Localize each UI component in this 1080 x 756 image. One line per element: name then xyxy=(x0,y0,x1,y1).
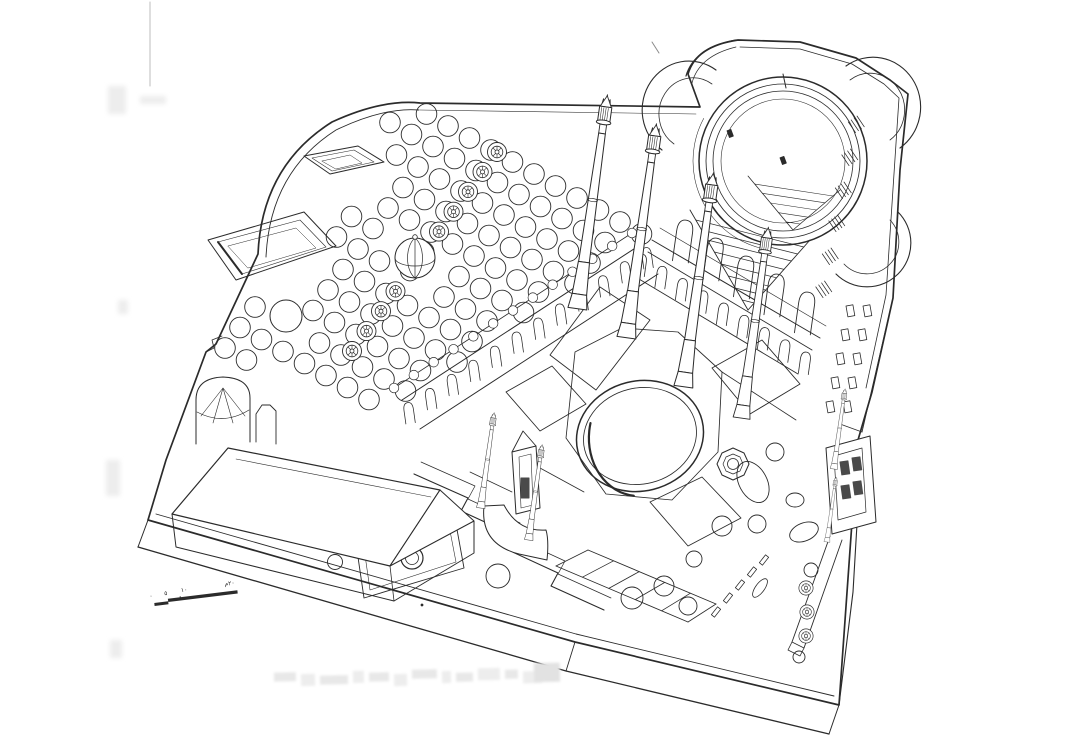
tree-circle xyxy=(309,333,330,354)
tree-circle xyxy=(429,169,450,190)
arcade-dome-bump xyxy=(548,280,558,290)
tree-circle xyxy=(558,241,579,262)
gate-window xyxy=(853,481,863,495)
ribbed-garden-dome xyxy=(395,235,435,278)
scale-bar: ٠ ٥ ١٠ ٢٠م xyxy=(149,579,238,606)
tree-circle xyxy=(273,341,294,362)
buttress-steps-part xyxy=(848,122,855,133)
paper-smudge xyxy=(106,460,120,496)
buttress-steps-part xyxy=(825,281,832,292)
caption-smudge xyxy=(301,674,315,686)
facade-arch xyxy=(794,291,816,335)
tombstone xyxy=(735,580,744,590)
caption-smudge xyxy=(320,675,348,685)
arcade-dome-bump xyxy=(627,228,637,238)
domed-kiosk xyxy=(473,162,492,181)
arcade-dome-bump xyxy=(508,306,518,316)
tree-circle xyxy=(679,597,697,615)
sunken-court xyxy=(208,212,336,280)
tall-minaret xyxy=(617,122,666,339)
tree-circle xyxy=(326,227,347,248)
tree-circle xyxy=(434,287,455,308)
tree-circle xyxy=(359,389,380,410)
arcade-arch xyxy=(737,315,750,338)
mosque-facade-arcade-part xyxy=(634,276,798,374)
stepped-semidome-line xyxy=(762,193,825,203)
arcade-dome-bump xyxy=(469,332,479,342)
tree-circle xyxy=(507,270,528,291)
tree-circle xyxy=(389,348,410,369)
east-gate-and-tomb-garden xyxy=(621,388,876,663)
domed-kiosk xyxy=(799,629,813,643)
planting-bed xyxy=(712,340,800,414)
tree-circle xyxy=(423,136,444,157)
gate-window xyxy=(840,461,850,475)
courtyard-pool-part xyxy=(573,376,707,497)
east-gate-and-tomb-garden-part xyxy=(788,642,804,656)
mosque-facade-arcade xyxy=(634,219,816,375)
arcade-arch xyxy=(425,388,437,410)
wall-window xyxy=(848,377,857,389)
arcade-arch xyxy=(798,351,811,374)
wall-window xyxy=(831,377,840,389)
stepped-semidome-line xyxy=(721,264,776,278)
arcade-arch xyxy=(403,402,415,424)
tree-circle xyxy=(654,576,674,596)
caption-smudge xyxy=(394,674,407,686)
scan-smudges xyxy=(106,86,166,658)
prayer-hall-domes-part xyxy=(862,298,893,432)
caption-smudge xyxy=(442,671,451,683)
gate-window xyxy=(841,485,851,499)
arcade-arch xyxy=(778,339,791,362)
courtyard-pool xyxy=(556,348,725,524)
turbe-octagon xyxy=(717,448,749,480)
caption-smudge xyxy=(412,669,437,679)
arcade-arch xyxy=(489,346,501,368)
domed-kiosk xyxy=(357,322,376,341)
caption-smudge xyxy=(534,663,560,683)
facade-arch xyxy=(672,219,694,263)
arcade-arch xyxy=(446,374,458,396)
prayer-hall-domes-part xyxy=(727,129,733,137)
tree-circle xyxy=(766,443,784,461)
tree-circle xyxy=(537,229,558,250)
platform-base-edge xyxy=(138,547,829,734)
tree-circle xyxy=(530,196,551,217)
chimney xyxy=(256,405,276,444)
arcade-arch xyxy=(554,303,566,325)
tree-circle xyxy=(712,516,732,536)
arcade-arch xyxy=(533,317,545,339)
caption-smudge xyxy=(505,670,518,679)
faded-caption xyxy=(274,663,560,689)
buttress-steps-part xyxy=(848,151,855,162)
tree-circle xyxy=(464,246,485,267)
large-tree-circle xyxy=(270,300,302,332)
scale-label: ٢٠م xyxy=(224,580,235,588)
tree-circle xyxy=(470,278,491,299)
courtyard-and-pool-part xyxy=(722,372,796,420)
semi-dome xyxy=(836,212,911,287)
tree-circle xyxy=(386,145,407,166)
tombstone xyxy=(747,567,756,577)
arcade-dome-bump xyxy=(488,319,498,329)
tree-circle xyxy=(399,210,420,231)
stepped-semidome-line xyxy=(779,213,808,217)
dome-finial xyxy=(783,74,786,88)
domed-kiosk xyxy=(386,282,405,301)
tree-circle xyxy=(552,208,573,229)
gate-window xyxy=(852,457,862,471)
buttress-steps xyxy=(816,281,832,298)
mosque-complex-axonometric-drawing: ٠ ٥ ١٠ ٢٠م xyxy=(0,0,1080,756)
paper-smudge xyxy=(108,86,126,114)
precinct-platform-outline-part xyxy=(829,705,839,734)
stepped-semidome-line xyxy=(771,203,817,210)
tall-minaret xyxy=(568,93,617,310)
arcade-dome-bump xyxy=(429,357,439,367)
buttress-steps-part xyxy=(825,252,832,263)
buttress-steps-part xyxy=(845,153,852,164)
scale-label: ٥ xyxy=(164,590,168,597)
tree-circle xyxy=(524,164,545,185)
buttress-steps xyxy=(822,248,838,265)
stepped-semidome-line xyxy=(714,252,784,269)
buttress-steps-part xyxy=(842,155,849,166)
tree-circle xyxy=(793,651,805,663)
tree-circle xyxy=(515,217,536,238)
bath-building xyxy=(172,377,474,601)
tree-circle xyxy=(251,329,272,350)
buttress-steps-part xyxy=(831,248,838,259)
precinct-wall-inner-arc xyxy=(266,110,419,257)
tree-circle xyxy=(438,116,459,137)
buttress-steps-part xyxy=(819,285,826,296)
tree-circle xyxy=(337,377,358,398)
tree-circle xyxy=(339,292,360,313)
paper-smudge xyxy=(140,96,166,104)
paper-smudge xyxy=(110,640,122,658)
precinct-outline xyxy=(148,40,908,705)
tree-circle xyxy=(522,249,543,270)
buttress-steps-part xyxy=(844,182,851,193)
arcade-dome-bump xyxy=(409,370,419,380)
tree-circle xyxy=(318,280,339,301)
wall-window xyxy=(846,305,855,317)
tree-circle xyxy=(545,176,566,197)
arcade-arch xyxy=(511,331,523,353)
south-terraces-and-gatehouse-part xyxy=(540,468,584,492)
tree-circle xyxy=(333,259,354,280)
precinct-platform-outline-part xyxy=(228,228,316,268)
domed-kiosk xyxy=(800,605,814,619)
tree-circle xyxy=(479,225,500,246)
precinct-platform-outline-part xyxy=(322,155,362,169)
buttress-steps-part xyxy=(851,149,858,160)
tomb-cylinder xyxy=(786,493,804,507)
gate-door xyxy=(521,478,529,498)
tree-circle xyxy=(354,271,375,292)
tree-circle xyxy=(494,205,515,226)
tree-circle xyxy=(610,212,631,233)
tall-minaret xyxy=(733,226,777,419)
arcade-dome-bump xyxy=(449,344,459,354)
domed-kiosk xyxy=(372,302,391,321)
tall-minaret xyxy=(674,171,723,388)
precinct-platform-outline-part xyxy=(218,220,326,274)
tree-circle xyxy=(459,128,480,149)
tree-circle xyxy=(408,157,429,178)
domed-kiosk xyxy=(799,581,813,595)
tree-circle xyxy=(316,365,337,386)
tree-circle xyxy=(369,251,390,272)
tree-circle xyxy=(414,189,435,210)
precinct-platform-outline-part xyxy=(420,110,696,114)
planting-bed xyxy=(650,477,741,546)
planting-bed xyxy=(506,366,586,431)
buttress-steps-part xyxy=(822,283,829,294)
wall-window xyxy=(826,401,835,413)
scale-bar-segment xyxy=(154,601,168,606)
scale-label: ٠ xyxy=(149,593,153,600)
arcade-dome-bump xyxy=(607,241,617,251)
tomb-oval xyxy=(787,518,822,546)
tombstone xyxy=(711,607,720,617)
tombstone xyxy=(723,593,732,603)
tombstone xyxy=(750,576,770,599)
domed-tower xyxy=(196,377,250,444)
domed-kiosk xyxy=(430,222,449,241)
arcade-dome-bump xyxy=(389,383,399,393)
tree-circle xyxy=(341,206,362,227)
tree-circle xyxy=(748,515,766,533)
sunken-court xyxy=(304,146,384,174)
terrace-step xyxy=(582,561,613,577)
paper-smudge xyxy=(118,300,128,314)
tree-circle xyxy=(378,198,399,219)
buttress-steps-part xyxy=(828,250,835,261)
terrace-step xyxy=(635,582,665,599)
arcade-arch xyxy=(757,327,770,350)
terrace-step xyxy=(609,572,639,589)
tree-circle xyxy=(236,350,257,371)
buttress-steps-part xyxy=(822,254,829,265)
tree-circle xyxy=(455,299,476,320)
tree-circle xyxy=(245,297,266,318)
caption-smudge xyxy=(369,672,389,681)
tree-circle xyxy=(416,104,437,125)
tree-circle xyxy=(444,148,465,169)
domed-kiosk xyxy=(444,202,463,221)
precinct-platform-outline-part xyxy=(218,242,242,274)
tree-circle xyxy=(380,112,401,133)
scale-label: ١٠ xyxy=(181,586,188,594)
buttress-steps-part xyxy=(854,118,861,129)
tree-circle xyxy=(567,188,588,209)
prayer-hall-domes-part xyxy=(686,40,736,76)
arcade-arch xyxy=(598,275,610,297)
caption-smudge xyxy=(456,672,473,681)
tree-circle xyxy=(303,300,324,321)
tree-circle xyxy=(509,184,530,205)
semi-dome xyxy=(846,57,921,148)
mosque-facade-arcade-part xyxy=(648,252,812,350)
arcade-arch xyxy=(675,278,688,301)
tombstone xyxy=(759,555,768,565)
tree-circle xyxy=(294,353,315,374)
tree-circle xyxy=(401,124,422,145)
buttress-steps-part xyxy=(838,186,845,197)
caption-smudge xyxy=(274,672,296,681)
hipped-roof xyxy=(172,448,440,566)
precinct-platform-outline-part xyxy=(138,520,148,547)
tree-circle xyxy=(348,239,369,260)
prayer-hall-domes-part xyxy=(840,424,862,432)
scale-bar-segment xyxy=(168,590,238,602)
domed-kiosk xyxy=(488,143,507,162)
precinct-platform-outline-part xyxy=(740,47,899,388)
tree-circle xyxy=(404,328,425,349)
caption-smudge xyxy=(478,668,500,680)
stepped-semidome-line xyxy=(707,240,791,261)
stepped-semidome-line xyxy=(755,184,833,196)
caption-smudge xyxy=(353,671,364,683)
prayer-hall-domes-part xyxy=(692,47,736,83)
tree-circle xyxy=(215,338,236,359)
arcade-arch xyxy=(468,360,480,382)
domed-kiosk xyxy=(343,342,362,361)
terrace-step xyxy=(556,550,588,566)
tree-circle xyxy=(486,564,510,588)
prayer-hall-domes-part xyxy=(780,156,786,164)
tree-circle xyxy=(363,218,384,239)
stray-mark xyxy=(652,42,659,53)
arcade-dome-bump xyxy=(528,293,538,303)
wall-window xyxy=(858,329,867,341)
tree-circle xyxy=(419,307,440,328)
wall-window xyxy=(836,353,845,365)
tree-circle xyxy=(324,312,345,333)
scanned-drawing-sheet: ٠ ٥ ١٠ ٢٠م xyxy=(0,0,1080,756)
tree-circle xyxy=(686,551,702,567)
ink-dot xyxy=(421,604,423,606)
tree-circle xyxy=(440,319,461,340)
buttress-steps-part xyxy=(816,287,823,298)
tree-circle xyxy=(328,555,343,570)
gate-minaret xyxy=(477,412,499,509)
domed-kiosk xyxy=(459,182,478,201)
tree-circle xyxy=(393,177,414,198)
arcade-arch xyxy=(716,302,729,325)
tree-circle xyxy=(543,261,564,282)
terrace-step xyxy=(688,604,716,622)
buttress-steps-part xyxy=(857,116,864,127)
tree-circle xyxy=(425,340,446,361)
arcade-arch xyxy=(655,266,668,289)
wall-window xyxy=(841,329,850,341)
tree-circle xyxy=(485,258,506,279)
south-terraces-and-gatehouse-part xyxy=(470,472,512,492)
wall-window xyxy=(863,305,872,317)
tree-circle xyxy=(500,237,521,258)
tree-circle xyxy=(230,317,251,338)
precinct-platform-outline-part xyxy=(566,642,575,671)
wall-window xyxy=(853,353,862,365)
tree-circle xyxy=(449,266,470,287)
pool-terrace-octagon xyxy=(566,328,722,500)
